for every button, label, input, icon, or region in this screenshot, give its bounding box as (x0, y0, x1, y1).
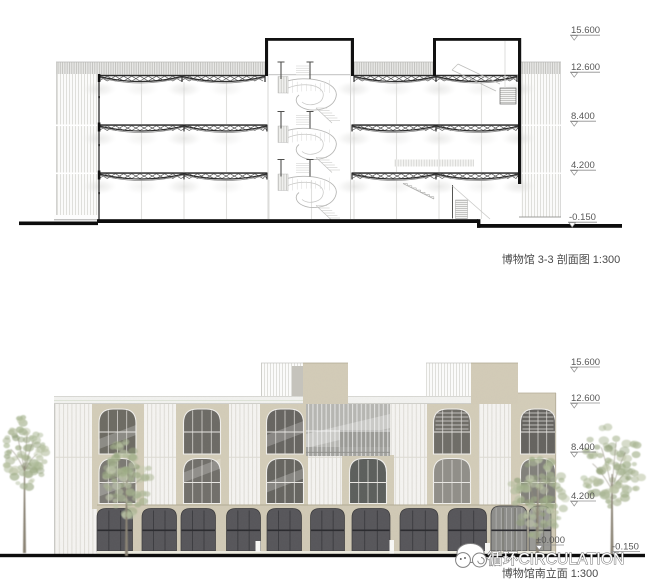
svg-text:±0.000: ±0.000 (536, 535, 565, 546)
svg-text:15.600: 15.600 (571, 25, 600, 36)
svg-text:4.200: 4.200 (571, 160, 595, 171)
svg-text:博物馆南立面 1:300: 博物馆南立面 1:300 (502, 566, 599, 580)
svg-text:15.600: 15.600 (571, 357, 600, 368)
svg-text:8.400: 8.400 (571, 442, 595, 453)
svg-text:-0.150: -0.150 (569, 212, 596, 223)
svg-text:博物馆 3-3 剖面图 1:300: 博物馆 3-3 剖面图 1:300 (502, 252, 621, 266)
svg-text:8.400: 8.400 (571, 111, 595, 122)
svg-text:循环CIRCULATION: 循环CIRCULATION (487, 550, 625, 568)
svg-text:12.600: 12.600 (571, 62, 600, 73)
svg-text:4.200: 4.200 (571, 491, 595, 502)
svg-text:12.600: 12.600 (571, 393, 600, 404)
